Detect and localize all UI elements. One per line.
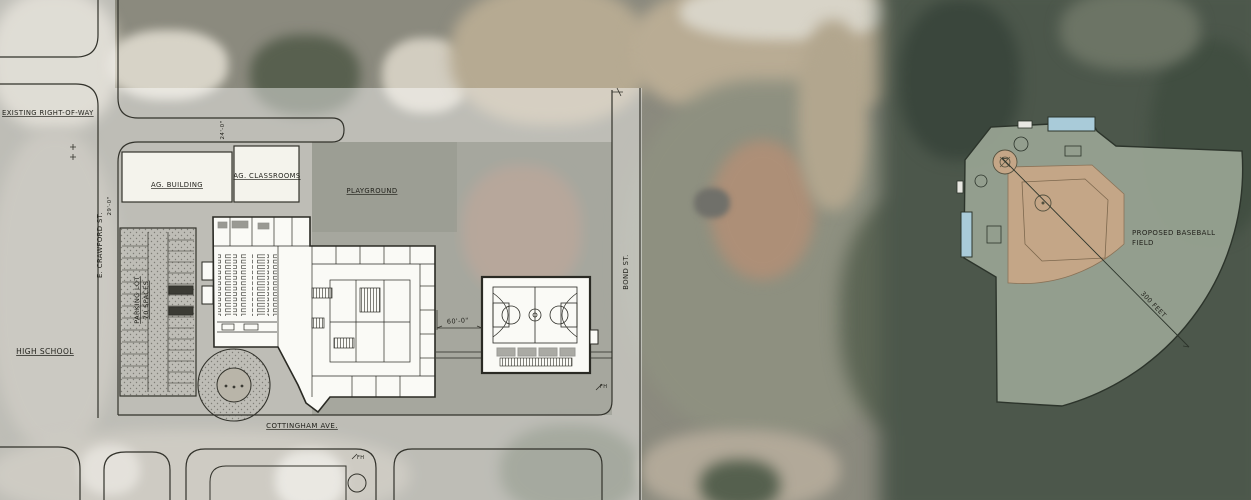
stair-4 <box>312 318 324 328</box>
dropoff-circle <box>198 349 270 421</box>
bleacher-west-small <box>957 181 963 193</box>
label-ag-building: AG. BUILDING <box>151 181 203 189</box>
west-bump-2 <box>202 286 213 304</box>
label-parking-lot-2: 70 SPACES <box>142 281 150 320</box>
bleacher-top-small <box>1018 121 1032 128</box>
label-parking-lot-1: PARKING LOT <box>133 276 141 324</box>
parked-car-1 <box>169 286 193 294</box>
ag-building-footprint <box>122 152 232 202</box>
label-crawford-st: E. CRAWFORD ST. <box>96 212 104 278</box>
bleacher-top <box>1048 117 1095 131</box>
gym-entry-east <box>590 330 598 344</box>
label-dim-gap: 60'-0" <box>447 316 469 326</box>
label-bond-st: BOND ST. <box>622 254 630 289</box>
stair-2 <box>360 288 380 312</box>
stair-3 <box>334 338 354 348</box>
site-plan-image: EXISTING RIGHT-OF-WAY AG. BUILDING AG. C… <box>0 0 1251 500</box>
label-fh-2: FH <box>357 455 364 461</box>
west-bump-1 <box>202 262 213 280</box>
site-plan-svg: EXISTING RIGHT-OF-WAY AG. BUILDING AG. C… <box>0 0 1251 500</box>
bleacher-west <box>961 212 972 257</box>
gymnasium <box>482 277 598 373</box>
baseball-field <box>957 117 1243 406</box>
parking-lot <box>120 228 196 396</box>
label-playground: PLAYGROUND <box>347 187 398 195</box>
label-dim-street: 29'-0" <box>107 197 113 216</box>
label-cottingham-ave: COTTINGHAM AVE. <box>266 422 338 430</box>
label-high-school: HIGH SCHOOL <box>16 347 74 356</box>
label-existing-right-of-way: EXISTING RIGHT-OF-WAY <box>2 109 94 117</box>
label-fh-1: FH <box>600 384 607 390</box>
stair-1 <box>312 288 332 298</box>
label-proposed-baseball-2: FIELD <box>1132 239 1154 247</box>
label-dim-drive: 24'-0" <box>220 121 226 140</box>
parked-car-2 <box>169 307 193 315</box>
label-proposed-baseball-1: PROPOSED BASEBALL <box>1132 229 1215 237</box>
label-ag-classrooms: AG. CLASSROOMS <box>233 172 300 180</box>
